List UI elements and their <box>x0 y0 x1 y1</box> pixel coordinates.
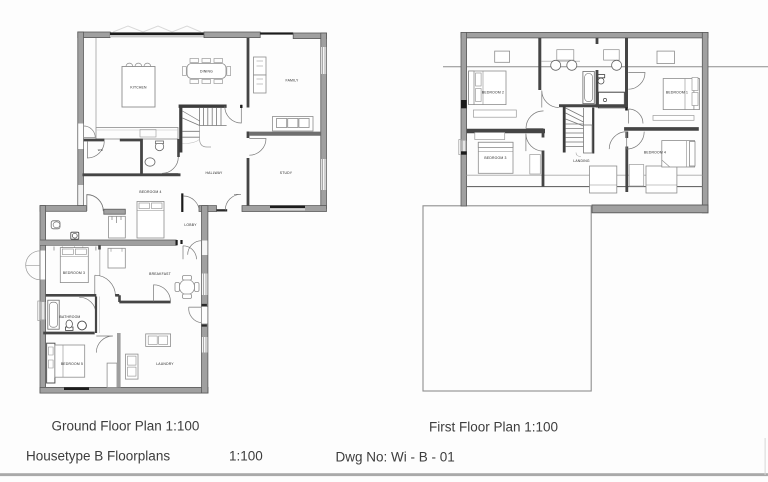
svg-text:BEDROOM 2: BEDROOM 2 <box>482 91 504 95</box>
svg-text:BEDROOM 5: BEDROOM 5 <box>61 362 83 366</box>
svg-text:STUDY: STUDY <box>280 171 293 175</box>
svg-text:1:100: 1:100 <box>229 449 263 464</box>
svg-text:First Floor Plan 1:100: First Floor Plan 1:100 <box>429 420 558 435</box>
svg-text:WC: WC <box>98 148 104 152</box>
svg-text:LANDING: LANDING <box>573 159 590 163</box>
svg-text:BEDROOM 3: BEDROOM 3 <box>63 271 85 275</box>
svg-text:Ground Floor Plan 1:100: Ground Floor Plan 1:100 <box>52 419 200 434</box>
svg-text:Housetype B Floorplans: Housetype B Floorplans <box>26 449 170 464</box>
svg-text:BREAKFAST: BREAKFAST <box>149 272 171 276</box>
svg-text:BEDROOM 1: BEDROOM 1 <box>666 91 688 95</box>
svg-text:LOBBY: LOBBY <box>184 223 197 227</box>
svg-text:BEDROOM 3: BEDROOM 3 <box>484 156 506 160</box>
svg-text:BATHROOM: BATHROOM <box>60 315 81 319</box>
svg-text:BEDROOM 4: BEDROOM 4 <box>139 190 161 194</box>
svg-text:KITCHEN: KITCHEN <box>130 86 147 90</box>
svg-text:Dwg No: Wi - B - 01: Dwg No: Wi - B - 01 <box>336 450 455 465</box>
svg-text:BEDROOM 4: BEDROOM 4 <box>644 151 666 155</box>
svg-text:LAUNDRY: LAUNDRY <box>156 362 174 366</box>
svg-text:FAMILY: FAMILY <box>285 79 299 83</box>
svg-text:HALLWAY: HALLWAY <box>206 171 224 175</box>
svg-text:DINING: DINING <box>200 70 213 74</box>
